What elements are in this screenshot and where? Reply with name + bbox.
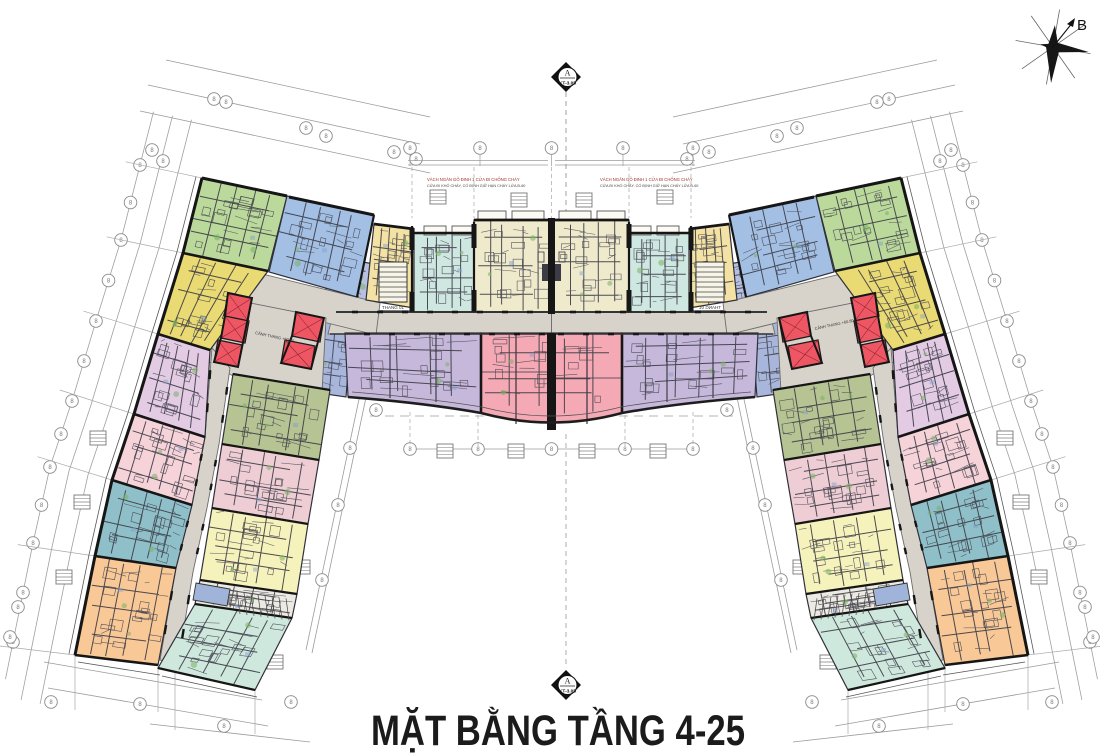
svg-text:KT-3.05: KT-3.05 <box>559 689 576 695</box>
svg-text:A: A <box>565 69 571 78</box>
svg-text:VÁCH NGĂN GỖ ĐINH 1 CỬA ĐI CHỐ: VÁCH NGĂN GỖ ĐINH 1 CỬA ĐI CHỐNG CHÁY <box>427 177 520 182</box>
svg-text:MẶT BẰNG TẦNG 4-25: MẶT BẰNG TẦNG 4-25 <box>371 707 745 755</box>
svg-text:CỬA ĐI KHÓ CHÁY, CỐ ĐỊNH GIỮ H: CỬA ĐI KHÓ CHÁY, CỐ ĐỊNH GIỮ HẠN CHÁY LỬ… <box>600 183 698 188</box>
svg-text:THANG 01: THANG 01 <box>699 305 722 310</box>
svg-text:KT-3.05: KT-3.05 <box>559 81 576 87</box>
svg-text:B: B <box>1077 17 1087 34</box>
svg-text:CỬA ĐI KHÓ CHÁY, CỐ ĐỊNH GIỮ H: CỬA ĐI KHÓ CHÁY, CỐ ĐỊNH GIỮ HẠN CHÁY LỬ… <box>427 183 525 188</box>
svg-text:A: A <box>565 677 571 686</box>
svg-text:VÁCH NGĂN GỖ ĐINH 1 CỬA ĐI CHỐ: VÁCH NGĂN GỖ ĐINH 1 CỬA ĐI CHỐNG CHÁY <box>600 177 693 182</box>
svg-text:THANG 01: THANG 01 <box>382 305 405 310</box>
